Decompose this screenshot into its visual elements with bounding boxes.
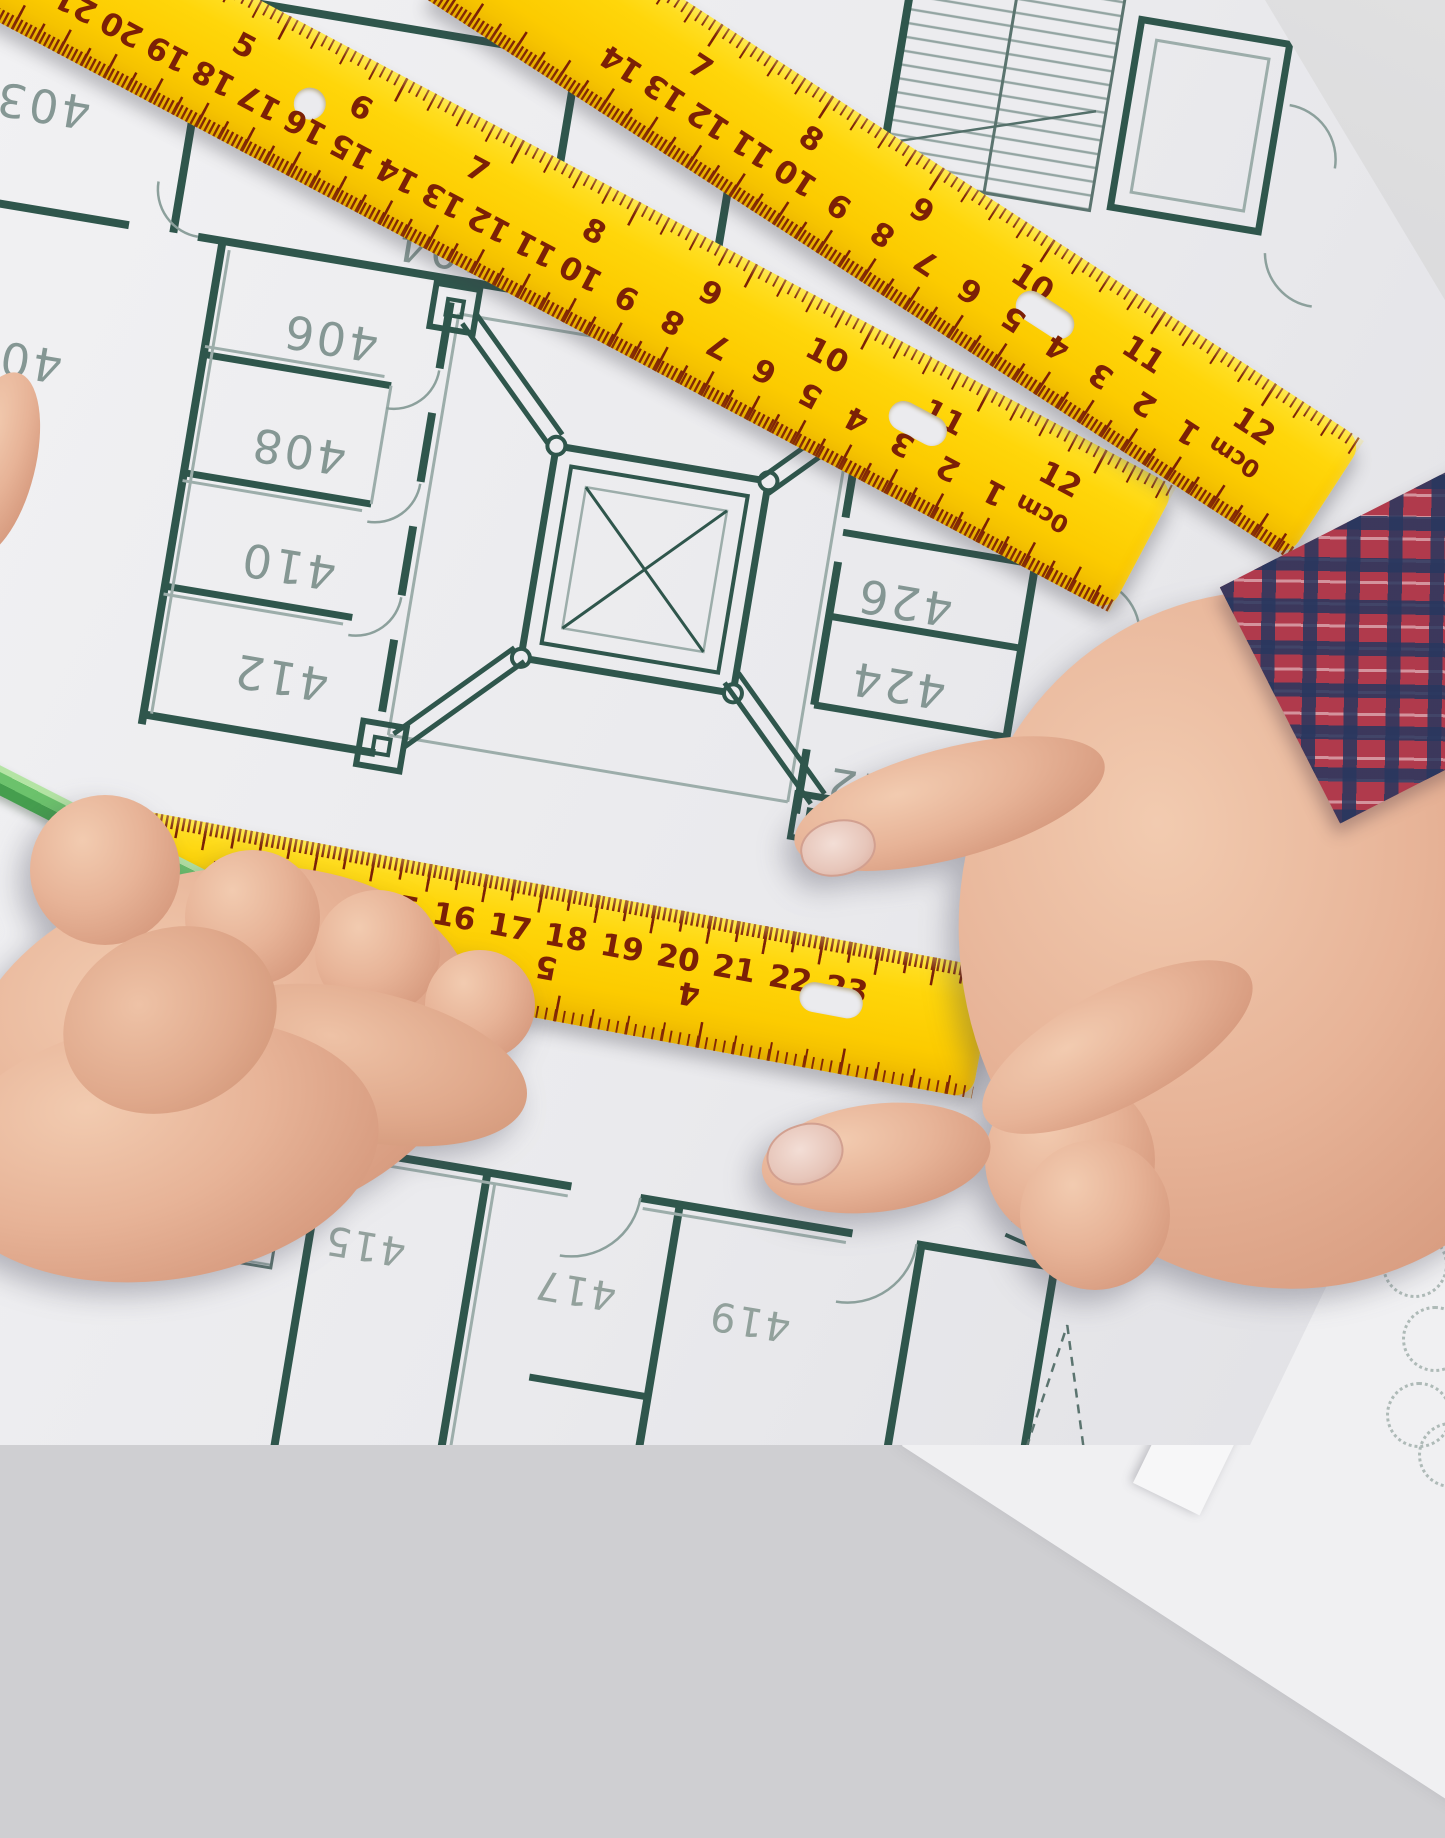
- ruler-number: 4: [839, 398, 875, 440]
- room-label-419: 419: [705, 1291, 794, 1350]
- ruler-number: 3: [885, 423, 921, 465]
- ruler-number: 9: [692, 273, 728, 315]
- ruler-number: 4: [675, 974, 703, 1013]
- floor-plan-rotation: 403 404 402 40 406 408 410 412 426 424 4…: [0, 0, 1445, 1554]
- tree-symbol: [1382, 1232, 1445, 1298]
- ruler-number: 5: [533, 947, 561, 986]
- staircase: [101, 1057, 301, 1268]
- ruler-number: 8: [576, 211, 612, 253]
- floor-plan: 403 404 402 40 406 408 410 412 426 424 4…: [0, 0, 1445, 1554]
- ruler-number: 7: [681, 46, 719, 88]
- blueprint-sheet: 403 404 402 40 406 408 410 412 426 424 4…: [0, 0, 1445, 1445]
- ruler-number: 5: [793, 374, 829, 416]
- room-label-413: 413: [36, 1155, 125, 1214]
- room-label-426: 426: [852, 568, 956, 637]
- ruler-number: 6: [747, 350, 783, 392]
- ruler-number: 1: [976, 472, 1012, 514]
- room-label-412: 412: [228, 643, 332, 712]
- room-label-408: 408: [246, 417, 350, 486]
- ruler-number: 8: [655, 301, 691, 343]
- ruler-number: 7: [701, 325, 737, 367]
- ruler-number: 5: [226, 25, 262, 67]
- ruler-number: 6: [343, 87, 379, 129]
- room-label-410: 410: [236, 531, 340, 600]
- ruler-number: 9: [903, 190, 941, 232]
- atrium: [511, 435, 779, 703]
- ruler-number: 21: [49, 0, 104, 30]
- ruler-number: 2: [930, 447, 966, 489]
- ruler-number: 9: [609, 276, 645, 318]
- ruler-number: 22: [3, 0, 58, 6]
- ruler-number: 7: [459, 149, 495, 191]
- room-label-403: 403: [0, 71, 95, 140]
- ruler-number: 6: [390, 921, 418, 960]
- room-label-415: 415: [320, 1216, 409, 1275]
- room-label-417: 417: [531, 1260, 620, 1319]
- ruler-number: 8: [792, 118, 830, 160]
